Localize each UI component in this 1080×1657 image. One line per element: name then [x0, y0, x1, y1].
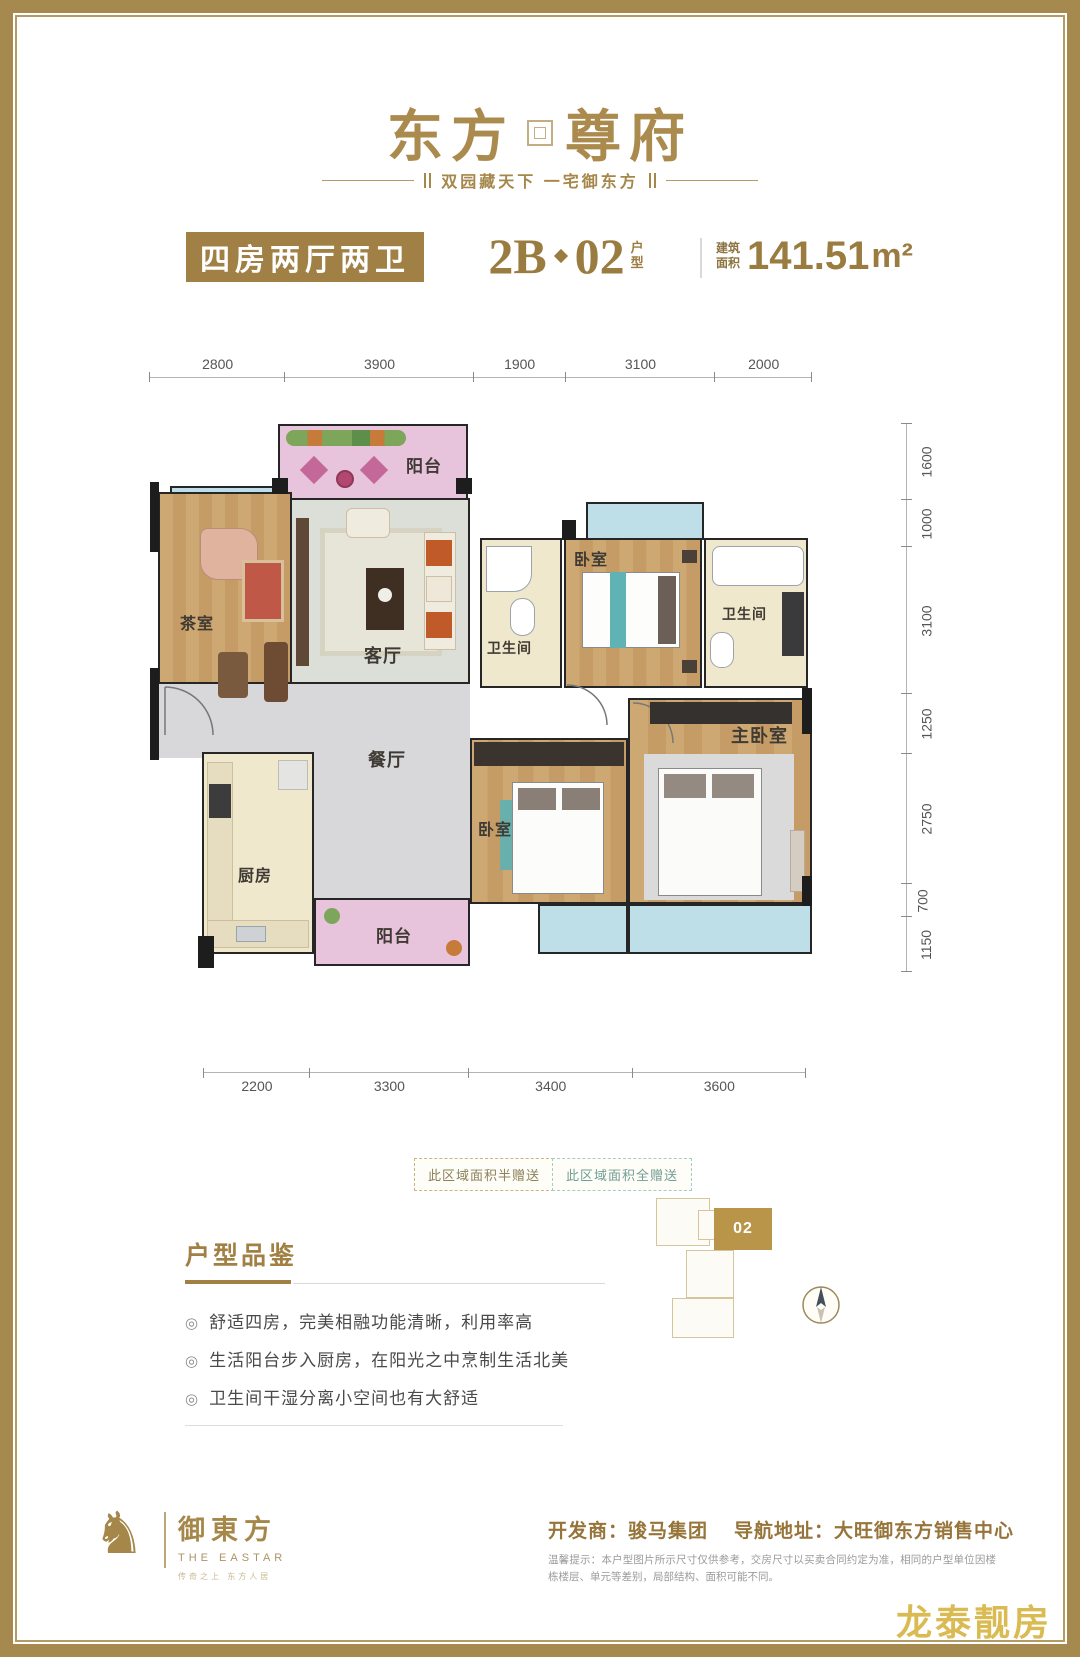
dim-right-3: 3100: [906, 547, 940, 694]
room-label-bedroom-mid: 卧室: [478, 816, 512, 840]
sink: [236, 926, 266, 942]
wall-segment: [802, 688, 812, 734]
tea-sofa: [264, 642, 288, 702]
footer-info: 开发商：骏马集团 导航地址：大旺御东方销售中心 温馨提示：本户型图片所示尺寸仅供…: [548, 1516, 996, 1587]
dim-right-5: 2750: [906, 754, 940, 884]
tv-cabinet: [296, 518, 309, 666]
area-unit: m²: [871, 237, 913, 276]
room-balcony-bottom: 阳台: [314, 898, 470, 966]
balcony-plant: [324, 908, 340, 924]
wall-segment: [198, 936, 214, 968]
features-bottom-line: [185, 1425, 563, 1426]
dim-top-1: 2800: [150, 356, 285, 378]
room-bath-right: 卫生间: [704, 538, 808, 688]
compass-icon: [798, 1280, 844, 1332]
toilet: [510, 598, 535, 636]
features-underline: [185, 1280, 605, 1284]
dim-bottom-1: 2200: [204, 1072, 310, 1098]
room-label-master: 主卧室: [731, 722, 788, 748]
tea-rug: [242, 560, 284, 622]
door-arc-bedroom: [566, 684, 608, 726]
area-label: 建筑 面积: [716, 241, 740, 271]
dim-right-1: 1600: [906, 424, 940, 500]
room-label-tea: 茶室: [180, 610, 214, 634]
address-label: 导航地址：大旺御东方销售中心: [734, 1516, 1014, 1543]
sofa-cushion: [426, 540, 452, 566]
tagline-bars-icon: [424, 173, 431, 188]
dim-bottom-2: 3300: [310, 1072, 469, 1098]
room-label-bedroom-top: 卧室: [574, 546, 608, 570]
room-label-balcony-top: 阳台: [406, 452, 442, 477]
dim-top-2: 3900: [285, 356, 473, 378]
poster-page: 东方 尊府 双园藏天下 一宅御东方 四房两厅两卫 2B 02 户 型 建筑 面积…: [0, 0, 1080, 1657]
bed-pillow: [658, 576, 676, 644]
room-bedroom-top: 卧室: [564, 538, 702, 688]
balcony-planter: [360, 456, 388, 484]
brand-tagline-row: 双园藏天下 一宅御东方: [0, 168, 1080, 192]
dim-top-4: 3100: [566, 356, 716, 378]
features-title: 户型品鉴: [185, 1236, 605, 1272]
unit-code-number: 02: [575, 227, 625, 285]
armchair: [346, 508, 390, 538]
brand-logo-right: 尊府: [565, 92, 693, 173]
bed-pillow: [562, 788, 600, 810]
nightstand: [682, 660, 697, 673]
balcony-planter: [300, 456, 328, 484]
unit-code-prefix: 2B: [488, 227, 546, 285]
dim-top-5: 2000: [715, 356, 812, 378]
toilet: [710, 632, 734, 668]
area-label-bottom: 面积: [716, 256, 740, 271]
wall-segment: [802, 876, 812, 906]
vanity: [782, 592, 804, 656]
nightstand: [682, 550, 697, 563]
bathtub: [712, 546, 804, 586]
room-bedroom-mid: 卧室: [470, 738, 628, 904]
unit-code-block: 2B 02 户 型: [438, 228, 694, 284]
bed-runner: [610, 572, 626, 648]
feature-item: 卫生间干湿分离小空间也有大舒适: [185, 1384, 605, 1409]
dim-bottom-4: 3600: [633, 1072, 806, 1098]
feature-item: 生活阳台步入厨房，在阳光之中烹制生活北美: [185, 1346, 605, 1371]
unit-suffix-bottom: 型: [631, 256, 644, 271]
fridge: [278, 760, 308, 790]
shower: [486, 546, 532, 592]
wall-segment: [150, 482, 159, 552]
dim-bottom-3: 3400: [469, 1072, 633, 1098]
horse-logo-icon: ♞: [93, 1504, 145, 1562]
wall-segment: [150, 668, 159, 760]
tagline-bars-icon: [649, 173, 656, 188]
footer-brand-en: THE EASTAR: [178, 1552, 286, 1564]
features-section: 户型品鉴 舒适四房，完美相融功能清晰，利用率高 生活阳台步入厨房，在阳光之中烹制…: [185, 1236, 605, 1426]
footer-developer-line: 开发商：骏马集团 导航地址：大旺御东方销售中心: [548, 1516, 996, 1543]
dim-right-6: 700: [906, 884, 940, 917]
room-balcony-topmid: [586, 502, 704, 540]
room-label-bath-left: 卫生间: [487, 638, 532, 658]
footer-disclaimer: 温馨提示：本户型图片所示尺寸仅供参考，交房尺寸以买卖合同约定为准，相同的户型单位…: [548, 1552, 996, 1587]
siteplan-building: [672, 1298, 734, 1338]
dim-right-2: 1000: [906, 500, 940, 547]
footer-brand: 御東方 THE EASTAR 传奇之上 东方人居: [178, 1508, 286, 1582]
sofa-cushion: [426, 612, 452, 638]
dim-right-4: 1250: [906, 694, 940, 753]
siteplan-building: [686, 1250, 734, 1298]
area-label-top: 建筑: [716, 241, 740, 256]
wall-segment: [456, 478, 472, 494]
legend-half-gift: 此区域面积半赠送: [414, 1158, 554, 1191]
balcony-plants: [286, 430, 406, 446]
room-living: 客厅: [290, 498, 470, 684]
wall-segment: [272, 478, 288, 494]
dimension-col-right: 1600 1000 3100 1250 2750 700 1150: [906, 424, 940, 972]
room-balcony-bedroom: [538, 904, 628, 954]
tea-table: [218, 652, 248, 698]
room-label-dining: 餐厅: [368, 746, 406, 772]
bed-pillow: [712, 774, 754, 798]
footer-brand-cn: 御東方: [178, 1508, 286, 1547]
siteplan-unit-highlight: 02: [714, 1208, 772, 1250]
feature-item: 舒适四房，完美相融功能清晰，利用率高: [185, 1308, 605, 1333]
brand-logo: 东方 尊府: [0, 92, 1080, 173]
footer-brand-sub: 传奇之上 东方人居: [178, 1571, 286, 1582]
stove: [209, 784, 231, 818]
room-dining: 餐厅: [290, 684, 470, 904]
door-arc-entry: [164, 686, 214, 736]
unit-type-badge: 四房两厅两卫: [186, 232, 424, 282]
room-label-kitchen: 厨房: [238, 862, 272, 886]
room-label-balcony-bottom: 阳台: [376, 922, 412, 947]
seal-ornament-icon: [527, 120, 553, 146]
bed-pillow: [664, 774, 706, 798]
header-divider: [700, 238, 702, 278]
room-balcony-top: 阳台: [278, 424, 468, 502]
room-balcony-master: [628, 904, 812, 954]
developer-label: 开发商：骏马集团: [548, 1516, 708, 1543]
room-label-bath-right: 卫生间: [722, 604, 767, 624]
wall-segment: [562, 520, 576, 540]
dim-top-3: 1900: [474, 356, 566, 378]
wardrobe: [474, 742, 624, 766]
watermark: 龙泰靓房: [896, 1594, 1052, 1646]
room-tea: 茶室: [158, 492, 292, 684]
room-bath-left: 卫生间: [480, 538, 562, 688]
dimension-row-top: 2800 3900 1900 3100 2000: [150, 356, 812, 378]
unit-suffix-top: 户: [631, 241, 644, 256]
brand-tagline: 双园藏天下 一宅御东方: [441, 168, 638, 192]
bed-pillow: [518, 788, 556, 810]
tagline-line-right: [666, 180, 758, 181]
brand-logo-left: 东方: [387, 92, 515, 173]
area-value: 141.51: [747, 234, 869, 279]
dimension-row-bottom: 2200 3300 3400 3600: [204, 1072, 806, 1098]
tagline-line-left: [322, 180, 414, 181]
features-list: 舒适四房，完美相融功能清晰，利用率高 生活阳台步入厨房，在阳光之中烹制生活北美 …: [185, 1308, 605, 1409]
diamond-ornament-icon: [554, 249, 568, 263]
table-decor: [378, 588, 392, 602]
sofa-cushion: [426, 576, 452, 602]
unit-code-suffix: 户 型: [631, 241, 644, 271]
dim-right-7: 1150: [906, 917, 940, 972]
wardrobe: [650, 702, 792, 724]
floor-plan: 餐厅 阳台 阳台 茶室 客厅: [150, 420, 880, 970]
built-area-block: 建筑 面积 141.51 m²: [716, 230, 913, 282]
footer-logo-divider: [164, 1512, 166, 1568]
legend-full-gift: 此区域面积全赠送: [552, 1158, 692, 1191]
balcony-plant: [446, 940, 462, 956]
room-kitchen: 厨房: [202, 752, 314, 954]
balcony-table: [336, 470, 354, 488]
room-label-living: 客厅: [364, 642, 402, 668]
